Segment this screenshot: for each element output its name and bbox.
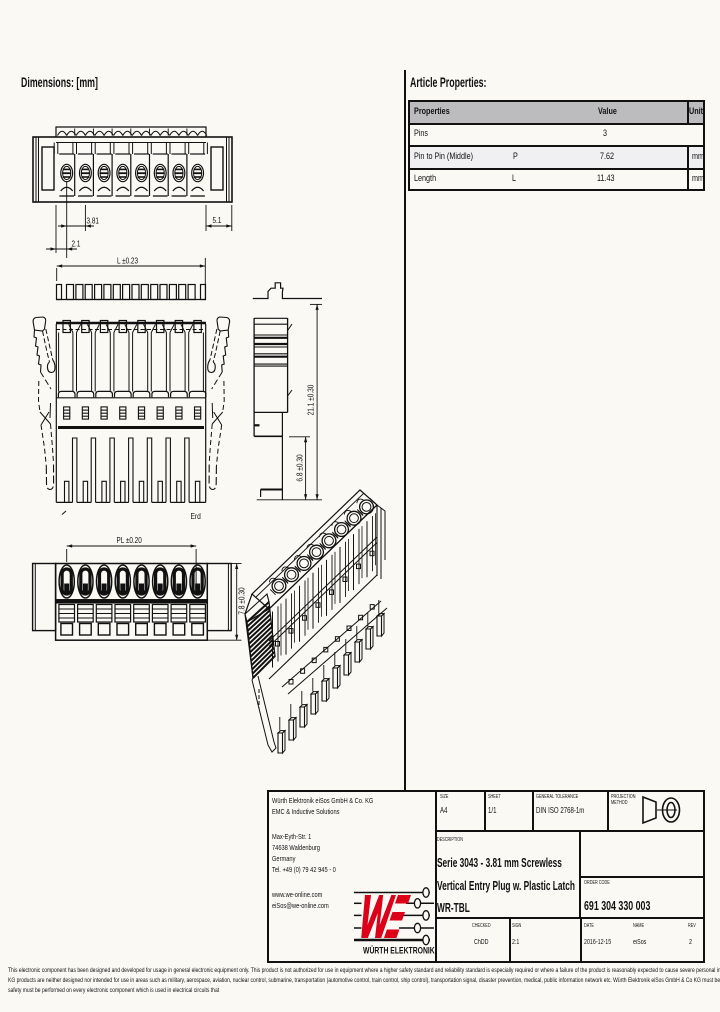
svg-text:7.8 ±0.30: 7.8 ±0.30 (237, 587, 247, 614)
svg-text:L ±0.23: L ±0.23 (117, 256, 138, 266)
svg-text:PL ±0.20: PL ±0.20 (117, 535, 142, 545)
svg-text:2.1: 2.1 (72, 239, 81, 249)
svg-text:5.1: 5.1 (213, 215, 222, 225)
svg-text:3.81: 3.81 (87, 216, 99, 226)
svg-text:6.8 ±0.30: 6.8 ±0.30 (294, 454, 304, 481)
svg-text:WÜRTH ELEKTRONIK: WÜRTH ELEKTRONIK (363, 944, 435, 955)
svg-text:Erd: Erd (191, 511, 201, 521)
svg-text:21.1 ±0.30: 21.1 ±0.30 (306, 385, 316, 416)
